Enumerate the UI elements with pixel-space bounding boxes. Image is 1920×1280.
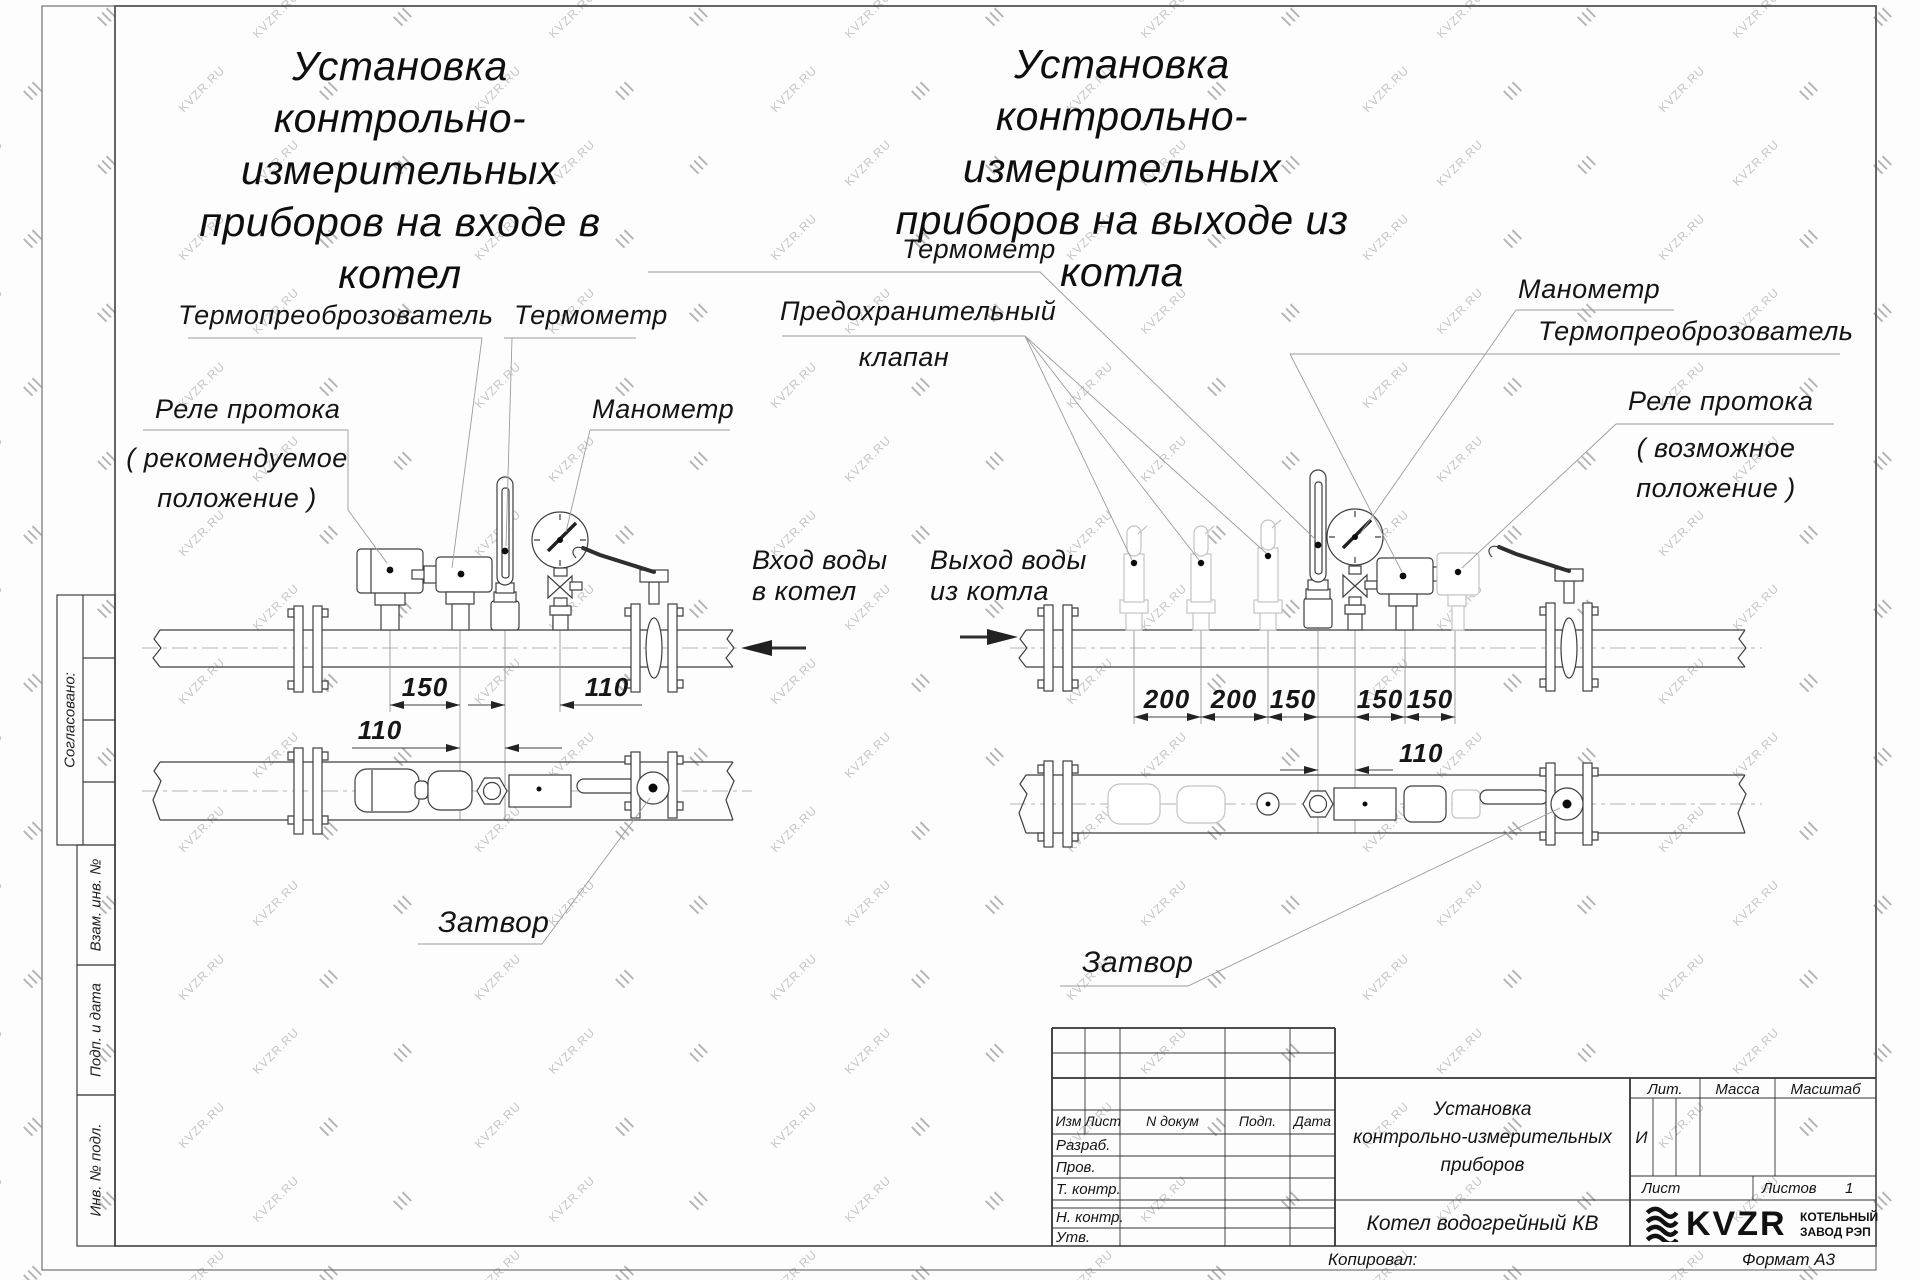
stamp-col-podp: Подп. bbox=[1225, 1113, 1290, 1129]
stamp-title-line3: приборов bbox=[1337, 1152, 1628, 1180]
flow-relay-instrument bbox=[357, 549, 423, 630]
stamp-product: Котел водогрейный КВ bbox=[1337, 1212, 1628, 1236]
stamp-col-list: Лист bbox=[1085, 1113, 1120, 1129]
safety-valve-2 bbox=[1187, 526, 1215, 630]
kvzr-logo-text: KVZR bbox=[1686, 1205, 1787, 1244]
right-flow-label: Выход воды из котла bbox=[930, 545, 1087, 607]
kvzr-logo-sub1: КОТЕЛЬНЫЙ bbox=[1800, 1210, 1878, 1225]
dim-150c: 150 bbox=[1407, 684, 1453, 714]
right-manometer-instrument bbox=[1327, 509, 1383, 630]
right-label-transducer: Термопреоброзователь bbox=[1538, 316, 1854, 347]
right-outlet-flange bbox=[1038, 605, 1078, 691]
right-flow-line2: из котла bbox=[930, 576, 1087, 607]
dim-150b: 150 bbox=[1357, 684, 1403, 714]
left-title: Установка контрольно-измерительных прибо… bbox=[120, 40, 680, 300]
dim-150a: 150 bbox=[1270, 684, 1316, 714]
stamp-scale-label: Масштаб bbox=[1775, 1081, 1876, 1098]
dim-110b: 110 bbox=[358, 715, 402, 745]
left-relay-note-line1: ( рекомендуемое bbox=[118, 438, 356, 478]
safety-valves bbox=[1120, 520, 1282, 630]
left-flow-line2: в котел bbox=[752, 576, 888, 607]
right-thermometer-instrument bbox=[1304, 470, 1332, 628]
stamp-lit-label: Лит. bbox=[1630, 1081, 1700, 1098]
butterfly-valve bbox=[573, 547, 683, 692]
stamp-row-tkontr: Т. контр. bbox=[1056, 1181, 1121, 1198]
right-label-safety-valve-line2: клапан bbox=[780, 342, 1028, 373]
sidebar-podp-label: Подп. и дата bbox=[88, 983, 105, 1077]
stamp-lit-value: И bbox=[1630, 1128, 1653, 1148]
stamp-doc-title: Установка контрольно-измерительных прибо… bbox=[1337, 1096, 1628, 1180]
dim-200b: 200 bbox=[1210, 684, 1257, 714]
right-label-valve: Затвор bbox=[1082, 946, 1193, 980]
kvzr-logo-subtext: КОТЕЛЬНЫЙ ЗАВОД РЭП bbox=[1800, 1210, 1878, 1240]
right-label-safety-valve-line1: Предохранительный bbox=[780, 296, 1028, 327]
left-flow-label: Вход воды в котел bbox=[752, 545, 888, 607]
left-flow-line1: Вход воды bbox=[752, 545, 888, 576]
right-butterfly-valve bbox=[1489, 546, 1598, 691]
dim-110a: 110 bbox=[585, 672, 629, 702]
dim-200a: 200 bbox=[1143, 684, 1190, 714]
right-label-flow-relay-note: ( возможное положение ) bbox=[1608, 428, 1824, 508]
stamp-sheets-label: Листов bbox=[1762, 1180, 1817, 1197]
stamp-col-data: Дата bbox=[1290, 1113, 1335, 1129]
drawing-sheet: KVZR.RU☰KVZR.RU☰KVZR.RU☰KVZR.RU☰KVZR.RU☰… bbox=[0, 0, 1920, 1280]
stamp-copied: Копировал: bbox=[1328, 1250, 1417, 1270]
safety-valve-3 bbox=[1254, 520, 1282, 630]
stamp-col-izm: Изм bbox=[1052, 1113, 1085, 1129]
left-label-transducer: Термопреоброзователь bbox=[178, 300, 494, 331]
left-relay-note-line2: положение ) bbox=[118, 478, 356, 518]
right-relay-note-line2: положение ) bbox=[1608, 468, 1824, 508]
safety-valve-1 bbox=[1120, 526, 1148, 630]
right-label-flow-relay: Реле протока bbox=[1628, 386, 1813, 417]
left-title-line2: контрольно-измерительных bbox=[120, 92, 680, 196]
left-label-valve: Затвор bbox=[438, 906, 549, 940]
thermometer-instrument bbox=[491, 477, 519, 630]
stamp-format: Формат А3 bbox=[1742, 1250, 1835, 1270]
left-inlet-flange bbox=[288, 606, 328, 692]
stamp-mass-label: Масса bbox=[1700, 1081, 1775, 1098]
left-label-flow-relay: Реле протока bbox=[155, 394, 340, 425]
stamp-title-line1: Установка bbox=[1337, 1096, 1628, 1124]
kvzr-logo-sub2: ЗАВОД РЭП bbox=[1800, 1225, 1878, 1240]
stamp-col-doc: N докум bbox=[1120, 1113, 1225, 1129]
stamp-sheet-label: Лист bbox=[1630, 1180, 1692, 1197]
right-label-thermometer: Термометр bbox=[902, 234, 1056, 265]
right-dimensions: 200 200 150 150 150 110 bbox=[1134, 684, 1455, 774]
outlet-flow-arrow bbox=[960, 629, 1018, 645]
left-title-line3: приборов на входе в bbox=[120, 196, 680, 248]
inlet-flow-arrow bbox=[741, 640, 806, 656]
sidebar-agreed-label: Согласовано: bbox=[62, 672, 79, 768]
right-relay-note-line1: ( возможное bbox=[1608, 428, 1824, 468]
kvzr-logo-icon bbox=[1644, 1206, 1680, 1242]
left-label-thermometer: Термометр bbox=[514, 300, 668, 331]
dim-150: 150 bbox=[402, 672, 448, 702]
left-dimensions: 150 110 110 bbox=[352, 672, 642, 752]
stamp-sheets-value: 1 bbox=[1845, 1180, 1853, 1197]
left-label-flow-relay-note: ( рекомендуемое положение ) bbox=[118, 438, 356, 518]
right-label-manometer: Манометр bbox=[1518, 274, 1660, 305]
manometer-instrument bbox=[532, 512, 588, 630]
stamp-row-utv: Утв. bbox=[1056, 1229, 1090, 1246]
dim-110r: 110 bbox=[1399, 738, 1443, 768]
sidebar-vzam-label: Взам. инв. № bbox=[88, 859, 105, 952]
sidebar-inv-label: Инв. № подл. bbox=[88, 1123, 105, 1216]
stamp-row-nkontr: Н. контр. bbox=[1056, 1209, 1124, 1226]
left-title-line4: котел bbox=[120, 248, 680, 300]
right-title-line1: Установка bbox=[842, 38, 1402, 90]
stamp-row-prov: Пров. bbox=[1056, 1159, 1096, 1176]
right-flow-relay-phantom bbox=[1437, 553, 1479, 630]
stamp-title-line2: контрольно-измерительных bbox=[1337, 1124, 1628, 1152]
left-title-line1: Установка bbox=[120, 40, 680, 92]
left-label-manometer: Манометр bbox=[592, 394, 734, 425]
right-title-line2: контрольно-измерительных bbox=[842, 90, 1402, 194]
stamp-row-razrab: Разраб. bbox=[1056, 1137, 1110, 1154]
right-flow-line1: Выход воды bbox=[930, 545, 1087, 576]
